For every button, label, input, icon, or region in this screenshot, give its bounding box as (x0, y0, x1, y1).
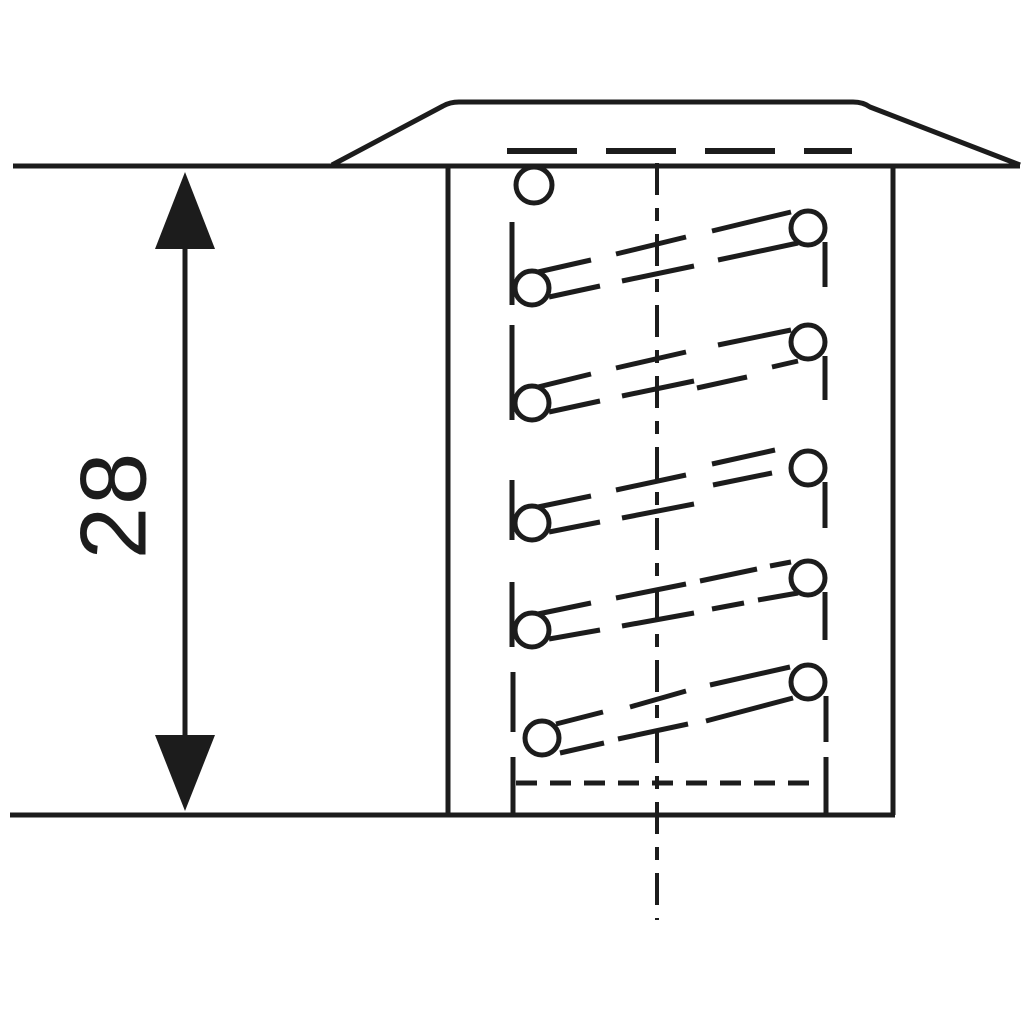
coil-thread-line (700, 569, 757, 581)
technical-drawing-canvas: 28 (0, 0, 1024, 1024)
coil-thread-line (622, 504, 694, 518)
coil-thread-line (549, 522, 600, 532)
coil-thread-line (538, 374, 591, 387)
coil-thread-line (549, 401, 600, 412)
coil-wire-section (791, 325, 825, 359)
coil-thread-line (772, 361, 798, 367)
coil-thread-line (616, 475, 686, 490)
coil-thread-line (758, 593, 798, 600)
flange-outline (332, 102, 1020, 165)
coil-thread-line (538, 260, 591, 272)
coil-thread-line (560, 743, 604, 753)
coil-wire-section (791, 665, 825, 699)
coil-thread-line (538, 496, 591, 507)
coil-wire-section (515, 613, 549, 647)
coil-thread-line (718, 330, 791, 345)
dimension-arrowhead-up-icon (155, 172, 215, 249)
coil-thread-line (770, 562, 791, 566)
coil-thread-line (718, 243, 798, 260)
coil-thread-line (706, 698, 793, 721)
coil-wire-section (791, 451, 825, 485)
coil-wire-section (791, 211, 825, 245)
coil-thread-line (712, 603, 744, 609)
coil-wire-section (515, 271, 549, 305)
coil-thread-line (538, 603, 591, 614)
coil-thread-line (712, 212, 791, 231)
coil-thread-line (556, 712, 603, 724)
coil-thread-line (712, 450, 775, 464)
coil-thread-line (549, 286, 600, 297)
dimension-arrowhead-down-icon (155, 735, 215, 811)
coil-wire-section (525, 721, 559, 755)
insert-section-drawing: 28 (0, 0, 1024, 1024)
coil-wire-section (515, 506, 549, 540)
coil-thread-representation (512, 167, 826, 816)
coil-wire-section (516, 167, 552, 203)
coil-thread-line (616, 584, 686, 598)
dimension-value-label: 28 (61, 451, 166, 560)
coil-thread-line (713, 473, 772, 485)
coil-thread-line (697, 377, 747, 388)
coil-thread-line (630, 691, 686, 707)
coil-thread-line (616, 352, 686, 368)
coil-thread-line (622, 266, 694, 281)
coil-thread-line (616, 237, 686, 254)
coil-wire-section (515, 386, 549, 420)
dimension-28: 28 (61, 172, 216, 811)
coil-thread-line (710, 667, 790, 685)
coil-thread-line (618, 724, 688, 739)
coil-thread-line (549, 630, 600, 639)
coil-wire-section (791, 561, 825, 595)
